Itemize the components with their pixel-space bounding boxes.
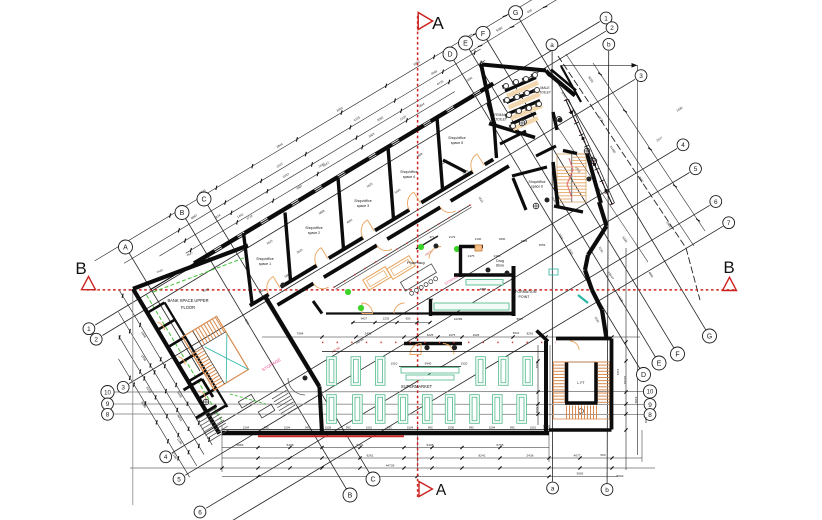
- svg-text:10: 10: [647, 390, 654, 396]
- svg-text:2436: 2436: [527, 454, 534, 458]
- svg-text:2100: 2100: [475, 237, 482, 241]
- svg-text:5692: 5692: [617, 474, 624, 478]
- svg-text:99C: 99C: [510, 426, 515, 430]
- svg-text:2475: 2475: [468, 254, 475, 258]
- svg-text:MALE: MALE: [540, 86, 550, 90]
- svg-text:Store: Store: [496, 264, 505, 268]
- svg-text:2: 2: [94, 337, 98, 344]
- svg-text:3: 3: [639, 73, 643, 80]
- svg-text:Shop/office: Shop/office: [354, 199, 372, 203]
- svg-text:E: E: [463, 41, 468, 48]
- svg-text:7994: 7994: [297, 332, 304, 336]
- svg-text:1002: 1002: [644, 417, 648, 424]
- svg-text:SUPERMARKET: SUPERMARKET: [401, 384, 433, 389]
- svg-text:2300: 2300: [494, 254, 501, 258]
- svg-text:1504: 1504: [489, 426, 496, 430]
- svg-text:space 2: space 2: [308, 231, 320, 235]
- svg-text:2436: 2436: [365, 332, 372, 336]
- svg-text:A: A: [436, 482, 447, 499]
- svg-text:G: G: [513, 10, 518, 17]
- svg-text:1625: 1625: [521, 239, 528, 243]
- svg-text:8331: 8331: [513, 331, 520, 335]
- svg-text:5401: 5401: [357, 443, 364, 447]
- svg-text:1: 1: [604, 15, 608, 22]
- svg-text:1530: 1530: [448, 426, 455, 430]
- svg-text:3: 3: [121, 385, 125, 392]
- svg-text:L FT: L FT: [577, 381, 585, 385]
- svg-text:BANK SPACE UPPER: BANK SPACE UPPER: [167, 298, 208, 303]
- svg-text:TOILET: TOILET: [495, 118, 507, 122]
- svg-text:B: B: [348, 493, 353, 500]
- svg-text:44739: 44739: [386, 464, 395, 468]
- svg-text:1504: 1504: [284, 426, 291, 430]
- svg-text:2225: 2225: [473, 333, 480, 337]
- svg-text:FLOOR: FLOOR: [181, 305, 195, 310]
- svg-text:1528: 1528: [325, 426, 332, 430]
- svg-text:16301: 16301: [623, 376, 627, 385]
- svg-text:C: C: [201, 197, 206, 204]
- svg-text:space 6: space 6: [531, 185, 543, 189]
- svg-text:Shop/office: Shop/office: [305, 226, 323, 230]
- svg-text:6: 6: [714, 199, 718, 206]
- svg-text:99C: 99C: [305, 426, 310, 430]
- svg-text:5940: 5940: [425, 362, 432, 366]
- svg-text:7704: 7704: [427, 297, 434, 301]
- svg-text:6225: 6225: [427, 333, 434, 337]
- svg-text:10289: 10289: [454, 317, 463, 321]
- svg-text:1800: 1800: [499, 237, 506, 241]
- svg-text:Pharmacy: Pharmacy: [407, 260, 425, 265]
- svg-text:8: 8: [106, 412, 110, 419]
- svg-text:TOILET: TOILET: [539, 91, 551, 95]
- svg-text:Shop/office: Shop/office: [256, 257, 274, 261]
- svg-text:99C: 99C: [387, 426, 392, 430]
- svg-text:Shop/office: Shop/office: [400, 170, 418, 174]
- svg-text:space 5: space 5: [451, 141, 463, 145]
- svg-text:4886: 4886: [480, 287, 487, 291]
- svg-text:Shop/office: Shop/office: [448, 136, 466, 140]
- svg-text:a: a: [550, 42, 554, 49]
- svg-text:A: A: [123, 245, 128, 252]
- svg-text:A: A: [432, 13, 444, 33]
- svg-text:POINT: POINT: [519, 295, 531, 299]
- svg-text:D: D: [641, 372, 646, 379]
- svg-text:8241: 8241: [479, 454, 486, 458]
- svg-text:1510: 1510: [391, 362, 398, 366]
- svg-text:9261: 9261: [367, 454, 374, 458]
- svg-text:INFORMATION: INFORMATION: [512, 290, 537, 294]
- svg-text:99C: 99C: [428, 426, 433, 430]
- svg-text:5692: 5692: [577, 472, 584, 476]
- svg-text:B: B: [180, 210, 185, 217]
- svg-text:6: 6: [198, 509, 202, 516]
- svg-text:1510: 1510: [366, 426, 373, 430]
- svg-text:2475: 2475: [449, 333, 456, 337]
- svg-text:b: b: [607, 42, 611, 49]
- svg-text:3059: 3059: [539, 243, 546, 247]
- svg-text:space 3: space 3: [357, 204, 369, 208]
- svg-text:8062: 8062: [535, 362, 539, 369]
- svg-text:1504: 1504: [243, 426, 250, 430]
- svg-text:E: E: [657, 361, 662, 368]
- svg-text:1520: 1520: [461, 362, 468, 366]
- svg-text:B: B: [75, 259, 86, 278]
- svg-text:a: a: [551, 485, 555, 492]
- svg-text:9: 9: [106, 401, 110, 408]
- svg-text:2235: 2235: [383, 317, 390, 321]
- svg-text:10: 10: [104, 390, 111, 396]
- svg-text:971: 971: [430, 235, 435, 239]
- svg-text:4: 4: [164, 454, 168, 461]
- svg-text:space 1: space 1: [259, 262, 271, 266]
- svg-text:D: D: [447, 52, 452, 59]
- svg-text:8291: 8291: [527, 332, 534, 336]
- svg-text:99C: 99C: [346, 426, 351, 430]
- svg-text:5: 5: [694, 166, 698, 173]
- svg-text:4423: 4423: [616, 369, 620, 376]
- svg-text:2179: 2179: [449, 235, 456, 239]
- svg-text:5: 5: [177, 476, 181, 483]
- svg-text:9: 9: [648, 402, 652, 409]
- svg-text:8062: 8062: [535, 407, 539, 414]
- svg-text:6755: 6755: [497, 443, 504, 447]
- svg-text:8637: 8637: [517, 317, 524, 321]
- svg-text:b: b: [605, 487, 609, 494]
- svg-text:F: F: [675, 352, 679, 359]
- svg-text:7: 7: [727, 220, 731, 227]
- svg-text:4677: 4677: [574, 454, 581, 458]
- svg-text:5408: 5408: [287, 443, 294, 447]
- svg-text:G: G: [707, 334, 712, 341]
- svg-text:2: 2: [610, 25, 614, 32]
- svg-text:1510: 1510: [530, 426, 537, 430]
- svg-text:4: 4: [681, 142, 685, 149]
- svg-text:600: 600: [406, 317, 411, 321]
- svg-text:C: C: [370, 477, 375, 484]
- svg-text:5684: 5684: [237, 443, 244, 447]
- svg-text:225: 225: [542, 425, 546, 430]
- svg-text:1504: 1504: [407, 426, 414, 430]
- svg-text:1: 1: [87, 326, 91, 333]
- svg-text:F: F: [481, 31, 485, 38]
- svg-text:99C: 99C: [264, 426, 269, 430]
- svg-text:8309: 8309: [634, 397, 638, 404]
- svg-text:5408: 5408: [427, 443, 434, 447]
- svg-text:600: 600: [600, 453, 605, 457]
- svg-text:B: B: [723, 258, 734, 277]
- svg-text:space 4: space 4: [403, 175, 415, 179]
- svg-text:Shop/office: Shop/office: [529, 180, 546, 184]
- svg-text:9427: 9427: [361, 317, 368, 321]
- svg-text:Drug: Drug: [496, 259, 504, 263]
- svg-text:99C: 99C: [469, 426, 474, 430]
